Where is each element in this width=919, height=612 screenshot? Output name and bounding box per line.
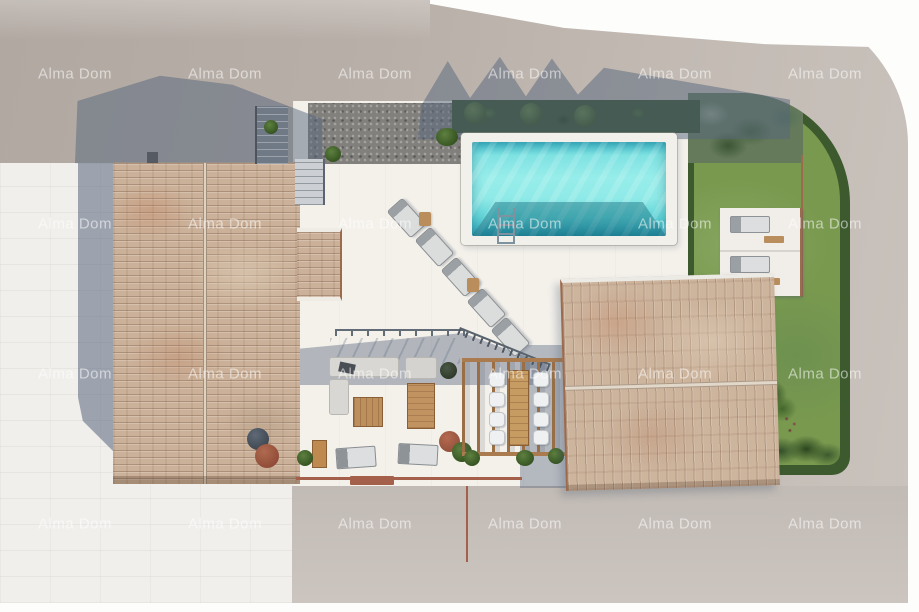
- road-light-haze: [0, 0, 430, 40]
- pergola-bush: [464, 450, 480, 466]
- alcove-lounger: [730, 256, 770, 273]
- dining-chair: [533, 392, 549, 407]
- green-bush: [264, 120, 278, 134]
- alcove-divider-wall: [720, 250, 800, 252]
- aerial-villa-render: Alma DomAlma DomAlma DomAlma DomAlma Dom…: [0, 0, 919, 612]
- watermark-text: Alma Dom: [788, 516, 862, 533]
- roof-extension: [297, 228, 342, 301]
- watermark-text: Alma Dom: [638, 366, 712, 383]
- plant-pot: [440, 362, 457, 379]
- terrace-bush: [436, 128, 458, 146]
- house-side-shadow: [78, 163, 118, 456]
- roof-ridge: [203, 163, 207, 484]
- wooden-deck-table: [407, 383, 435, 429]
- watermark-text: Alma Dom: [638, 216, 712, 233]
- pergola-bush: [516, 450, 534, 466]
- boundary-line: [466, 486, 468, 562]
- alcove-lounger: [730, 216, 770, 233]
- staircase-upper-flight: [255, 106, 288, 164]
- dining-chair: [489, 392, 505, 407]
- lounger-side-table: [419, 212, 431, 226]
- coffee-table: [353, 397, 383, 427]
- staircase-lower-flight: [295, 159, 325, 205]
- watermark-text: Alma Dom: [788, 66, 862, 83]
- boundary-line: [296, 477, 522, 480]
- bottom-pavement: [292, 486, 908, 603]
- watermark-text: Alma Dom: [488, 216, 562, 233]
- terrace-railing: [335, 329, 465, 336]
- dining-chair: [489, 430, 505, 445]
- alcove-side-table: [764, 236, 784, 243]
- watermark-text: Alma Dom: [788, 366, 862, 383]
- watermark-text: Alma Dom: [338, 216, 412, 233]
- watermark-text: Alma Dom: [638, 66, 712, 83]
- watermark-text: Alma Dom: [188, 516, 262, 533]
- wood-cabinet: [312, 440, 327, 468]
- main-house-roof: [113, 162, 300, 484]
- deck-lounger: [335, 446, 376, 470]
- watermark-text: Alma Dom: [38, 66, 112, 83]
- watermark-text: Alma Dom: [188, 366, 262, 383]
- terracotta-round-pot: [255, 444, 279, 468]
- watermark-text: Alma Dom: [38, 216, 112, 233]
- watermark-text: Alma Dom: [788, 216, 862, 233]
- watermark-text: Alma Dom: [338, 516, 412, 533]
- watermark-text: Alma Dom: [188, 216, 262, 233]
- dining-chair: [533, 412, 549, 427]
- watermark-text: Alma Dom: [638, 516, 712, 533]
- dining-chair: [533, 430, 549, 445]
- pergola-bush: [548, 448, 564, 464]
- dining-chair: [489, 412, 505, 427]
- chimney: [147, 152, 158, 163]
- sofa: [329, 379, 349, 415]
- watermark-text: Alma Dom: [338, 366, 412, 383]
- deck-lounger: [397, 443, 438, 466]
- green-bush: [325, 146, 341, 162]
- doormat: [350, 476, 394, 485]
- watermark-text: Alma Dom: [488, 66, 562, 83]
- lounger-side-table: [467, 278, 479, 292]
- watermark-text: Alma Dom: [488, 516, 562, 533]
- watermark-text: Alma Dom: [188, 66, 262, 83]
- watermark-text: Alma Dom: [338, 66, 412, 83]
- watermark-text: Alma Dom: [38, 516, 112, 533]
- watermark-text: Alma Dom: [38, 366, 112, 383]
- green-bush: [297, 450, 313, 466]
- watermark-text: Alma Dom: [488, 366, 562, 383]
- roof-eave: [113, 476, 300, 484]
